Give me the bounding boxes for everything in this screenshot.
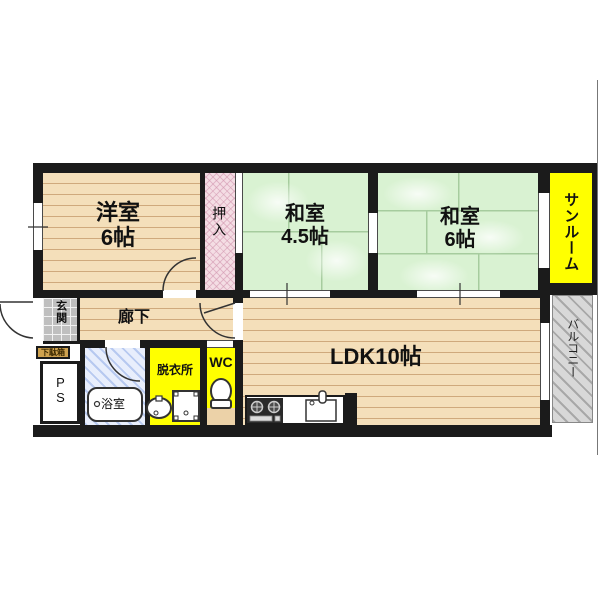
washitsu45-name: 和室 bbox=[285, 203, 325, 225]
fixtures-layer bbox=[0, 0, 600, 600]
washitsu45-label: 和室 4.5帖 bbox=[255, 203, 355, 249]
balcony-label: バルコニー bbox=[565, 318, 579, 378]
washitsu6-size: 6帖 bbox=[444, 229, 475, 251]
toilet-icon bbox=[211, 379, 231, 408]
washitsu45-size: 4.5帖 bbox=[281, 226, 329, 248]
hallway-ldk-door-icon bbox=[200, 303, 235, 338]
entrance-door-icon bbox=[0, 302, 33, 338]
sunroom-label: サンルーム bbox=[562, 192, 579, 272]
floor-plan: 下駄箱 bbox=[0, 0, 600, 600]
western-room-label: 洋室 6帖 bbox=[58, 200, 178, 251]
western-room-size: 6帖 bbox=[101, 225, 135, 250]
bathroom-door-icon bbox=[106, 347, 140, 381]
dressing-room-label: 脱衣所 bbox=[150, 364, 200, 378]
wc-label: WC bbox=[207, 354, 235, 370]
ldk-label: LDK10帖 bbox=[330, 344, 422, 369]
washitsu6-name: 和室 bbox=[440, 206, 480, 228]
washbasin-icon bbox=[147, 396, 171, 418]
closet-label: 押入 bbox=[211, 206, 227, 238]
entrance-label: 玄関 bbox=[54, 300, 67, 324]
bathroom-label: 浴室 bbox=[101, 398, 125, 412]
washing-machine-icon bbox=[173, 391, 199, 421]
western-room-name: 洋室 bbox=[96, 200, 140, 225]
western-room-door-icon bbox=[163, 258, 196, 291]
kitchen-sink-icon bbox=[306, 391, 336, 421]
washitsu6-label: 和室 6帖 bbox=[410, 206, 510, 252]
hallway-label: 廊下 bbox=[118, 309, 150, 327]
stove-icon bbox=[247, 398, 283, 423]
pipe-space-label: PS bbox=[52, 375, 67, 405]
